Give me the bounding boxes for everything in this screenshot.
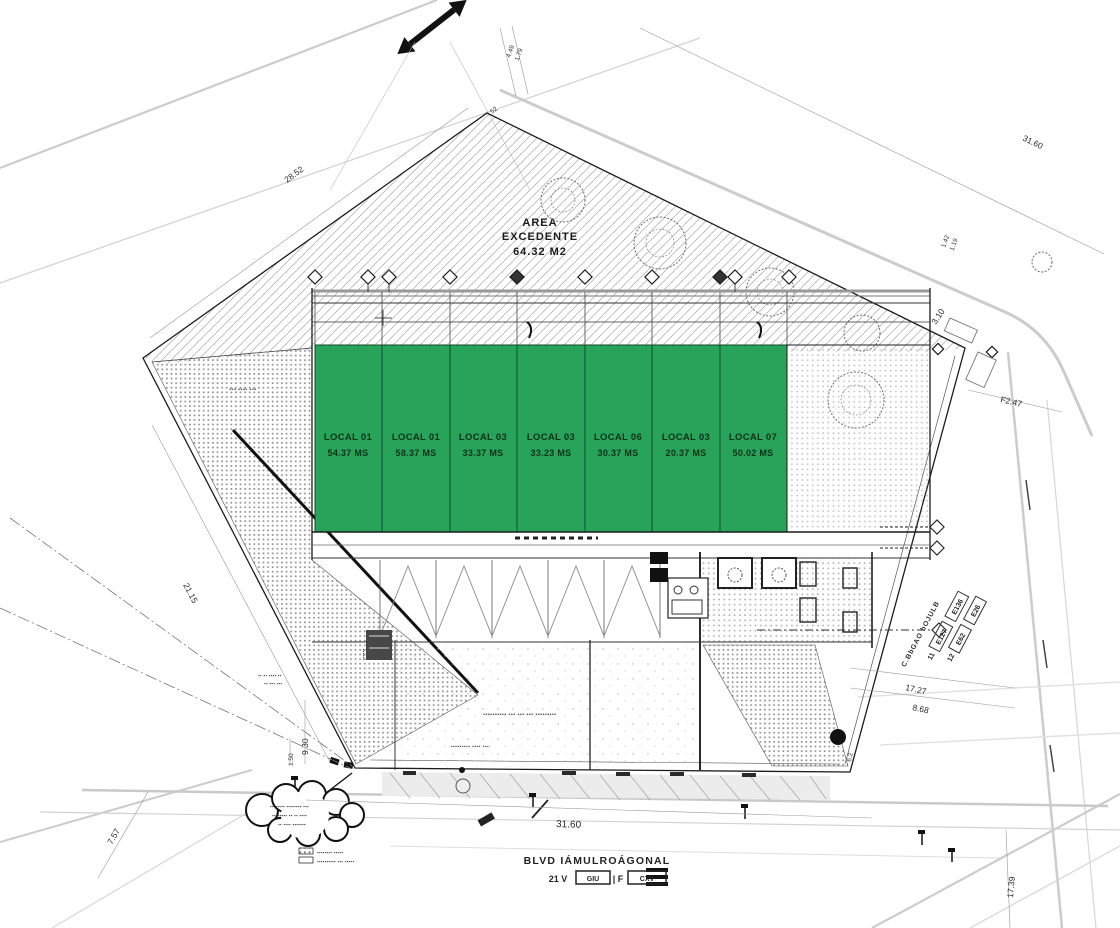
local-name: LOCAL 07 (729, 432, 777, 443)
courtyard-paving (396, 643, 699, 768)
dim-corner-b: 1.50 (288, 753, 295, 766)
dim-right-upper: 3.10 (929, 307, 947, 327)
dim-bottom-street: 31.60 (556, 819, 582, 831)
local-unit-5[interactable]: LOCAL 06 30.37 MS (585, 345, 652, 532)
legend-swatch-1 (299, 848, 313, 854)
local-area: 58.37 MS (396, 448, 437, 458)
dim-left-edge: 21.15 (181, 581, 200, 605)
dim-right-lot: F2.47 (1000, 394, 1024, 409)
boulevard-name: BLVD IÁMULROÁGONAL (524, 854, 671, 867)
local-unit-3[interactable]: LOCAL 03 33.37 MS (450, 345, 517, 532)
side-addr-box-2b: E26 (970, 604, 982, 618)
local-name: LOCAL 03 (662, 432, 710, 443)
side-street-labels: C.BbGAO bOJULB 11 E127 E136 12 E62 E26 (901, 580, 987, 686)
local-unit-7[interactable]: LOCAL 07 50.02 MS (720, 345, 787, 532)
street-parking-band (382, 772, 830, 800)
local-area: 54.37 MS (328, 448, 369, 458)
courtyard-note-1: ▪▪▪▪▪▪▪▪▪▪ ▪▪▪ ▪▪▪ ▪▪▪ ▪▪▪▪▪▪▪▪▪ (483, 712, 557, 718)
dim-top-b: 1.79 (514, 47, 525, 62)
local-area: 33.23 MS (531, 448, 572, 458)
utility-box (650, 568, 668, 582)
local-area: 50.02 MS (733, 448, 774, 458)
legend-row1: ▪▪▪▪▪▪▪▪ ▪▪▪▪▪ (317, 850, 343, 855)
legend-row2: ▪▪▪▪▪▪▪▪▪▪ ▪▪▪ ▪▪▪▪▪ (317, 859, 354, 864)
locals-block: LOCAL 01 54.37 MS LOCAL 01 58.37 MS LOCA… (315, 345, 930, 532)
area-excedente-line3: 64.32 M2 (513, 246, 567, 258)
legend-swatch-2 (299, 857, 313, 863)
address-prefix: 21 V (549, 874, 568, 884)
area-excedente-line2: EXCEDENTE (502, 231, 578, 243)
legend: ▪▪▪▪▪▪▪▪ ▪▪▪▪▪ ▪▪▪▪▪▪▪▪▪▪ ▪▪▪ ▪▪▪▪▪ (299, 848, 354, 864)
dim-corner-a: 9.30 (300, 738, 310, 755)
right-building-block (787, 345, 930, 532)
courtyard-note-2: ▪▪▪▪▪▪▪▪▪ ▪▪▪▪ ▪▪▪ (451, 744, 489, 750)
local-name: LOCAL 06 (594, 432, 642, 443)
local-unit-4[interactable]: LOCAL 03 33.23 MS (517, 345, 585, 532)
local-name: LOCAL 03 (527, 432, 575, 443)
planter (762, 558, 796, 588)
dim-right-b: 1.19 (949, 237, 960, 252)
dim-right-lower-b: 8.68 (912, 702, 931, 715)
ramp-note: ▪▪▪▪▪▪ (361, 649, 366, 660)
local-name: LOCAL 01 (324, 432, 373, 443)
cloud-note-line3: ▪▪ ▪▪▪▪ ▪▪▪▪▪▪▪ (278, 822, 306, 827)
planter (718, 558, 752, 588)
tree-icon (1032, 252, 1052, 272)
enclosure-box (366, 630, 392, 660)
corner-note-1: ▪▪ ▪▪ ▪▪▪▪ ▪▪ (258, 673, 282, 678)
local-unit-6[interactable]: LOCAL 03 20.37 MS (652, 345, 720, 532)
cloud-note-line1: ▪▪ ▪▪▪▪▪ ▪▪▪▪▪▪▪▪ ▪▪▪ (270, 804, 309, 809)
side-addr-num-2: 12 (947, 653, 957, 663)
dim-bottom-right: 17.39 (1005, 876, 1017, 898)
dim-top-right: 31.60 (1021, 133, 1045, 151)
address-box-1-label: GIU (587, 876, 599, 883)
dim-top-left: 28.52 (282, 164, 305, 185)
site-plan-svg: AREA EXCEDENTE 64.32 M2 ▪▪▪ ▪▪▪▪ ▪▪▪ (0, 0, 1120, 928)
side-addr-num-1: 11 (927, 652, 937, 662)
local-unit-1[interactable]: LOCAL 01 54.37 MS (315, 345, 382, 532)
local-area: 20.37 MS (666, 448, 707, 458)
dim-left-bottom: 7.57 (105, 826, 122, 846)
side-addr-box-2a: E62 (955, 632, 967, 646)
local-name: LOCAL 03 (459, 432, 507, 443)
left-area-note: ▪▪▪ ▪▪▪▪ ▪▪▪ (229, 387, 256, 393)
address-box-2-label: CXV (640, 876, 655, 883)
revision-cloud: ▪▪ ▪▪▪▪▪ ▪▪▪▪▪▪▪▪ ▪▪▪ ▪▪▪▪▪▪▪▪ ▪▪ ▪▪ ▪▪▪… (246, 773, 364, 846)
area-excedente-line1: AREA (522, 217, 557, 229)
local-name: LOCAL 01 (392, 432, 441, 443)
site-plan-canvas: AREA EXCEDENTE 64.32 M2 ▪▪▪ ▪▪▪▪ ▪▪▪ (0, 0, 1120, 928)
right-planting-wedge (703, 645, 848, 766)
utility-box (650, 552, 668, 564)
local-unit-2[interactable]: LOCAL 01 58.37 MS (382, 345, 450, 532)
local-area: 33.37 MS (463, 448, 504, 458)
local-area: 30.37 MS (598, 448, 639, 458)
parking-stripe-zigzag (380, 566, 660, 636)
street-circle (456, 779, 470, 793)
manhole-icon (830, 729, 846, 745)
cloud-note-line2: ▪▪▪▪▪▪▪▪ ▪▪ ▪▪ ▪▪▪▪ (272, 813, 307, 818)
address-mid: | F (613, 874, 624, 884)
corner-note-2: ▪▪ ▪▪▪ ▪▪▪ (264, 681, 282, 686)
